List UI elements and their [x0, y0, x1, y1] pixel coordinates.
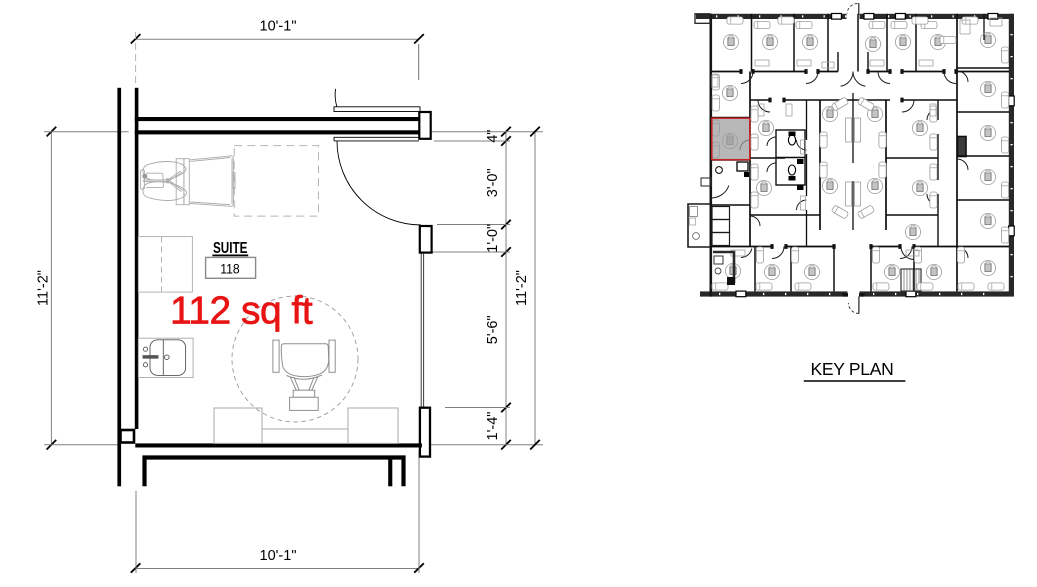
svg-text:3'-0": 3'-0" — [485, 168, 501, 197]
svg-text:11'-2": 11'-2" — [36, 270, 52, 306]
svg-text:112 sq ft: 112 sq ft — [170, 290, 313, 333]
svg-text:1'-4": 1'-4" — [485, 412, 501, 441]
svg-text:SUITE: SUITE — [213, 240, 248, 257]
svg-text:4": 4" — [485, 130, 501, 143]
svg-text:10'-1": 10'-1" — [260, 19, 297, 35]
svg-text:10'-1": 10'-1" — [260, 548, 297, 564]
svg-text:KEY PLAN: KEY PLAN — [811, 359, 894, 379]
svg-text:11'-2": 11'-2" — [514, 270, 530, 306]
svg-text:118: 118 — [220, 260, 240, 276]
svg-text:1'-0": 1'-0" — [485, 224, 501, 253]
svg-text:5'-6": 5'-6" — [485, 315, 501, 344]
